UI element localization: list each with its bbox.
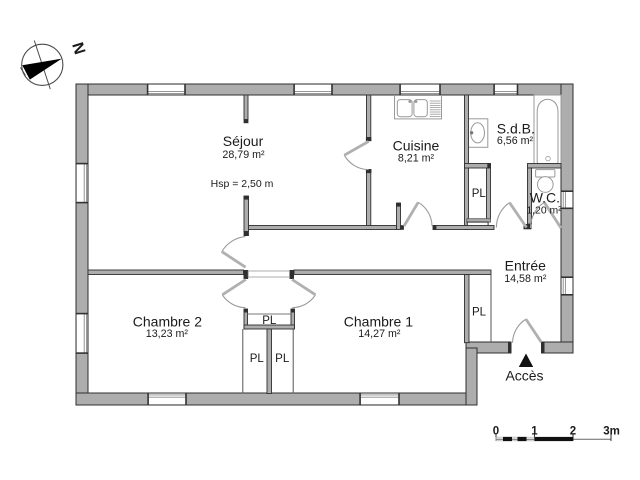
svg-text:Chambre 2: Chambre 2 xyxy=(133,313,202,329)
svg-text:PL: PL xyxy=(250,353,265,365)
svg-text:14,58 m²: 14,58 m² xyxy=(504,273,547,285)
svg-text:6,56 m²: 6,56 m² xyxy=(497,135,534,147)
svg-text:Accès: Accès xyxy=(505,368,543,384)
svg-text:8,21 m²: 8,21 m² xyxy=(398,153,435,165)
svg-text:W.C.: W.C. xyxy=(530,190,560,206)
svg-text:PL: PL xyxy=(472,307,487,319)
svg-text:Cuisine: Cuisine xyxy=(393,138,440,154)
svg-text:28,79 m²: 28,79 m² xyxy=(222,149,265,161)
svg-text:S.d.B.: S.d.B. xyxy=(497,120,535,136)
svg-text:13,23 m²: 13,23 m² xyxy=(146,328,189,340)
svg-text:14,27 m²: 14,27 m² xyxy=(358,328,401,340)
svg-text:Chambre 1: Chambre 1 xyxy=(344,313,413,329)
svg-text:PL: PL xyxy=(275,353,290,365)
svg-text:Entrée: Entrée xyxy=(505,258,546,274)
svg-text:1,20 m²: 1,20 m² xyxy=(526,206,562,217)
svg-text:Hsp = 2,50 m: Hsp = 2,50 m xyxy=(211,178,274,190)
svg-text:PL: PL xyxy=(472,188,487,200)
svg-text:Séjour: Séjour xyxy=(223,133,264,149)
svg-text:PL: PL xyxy=(262,315,277,327)
